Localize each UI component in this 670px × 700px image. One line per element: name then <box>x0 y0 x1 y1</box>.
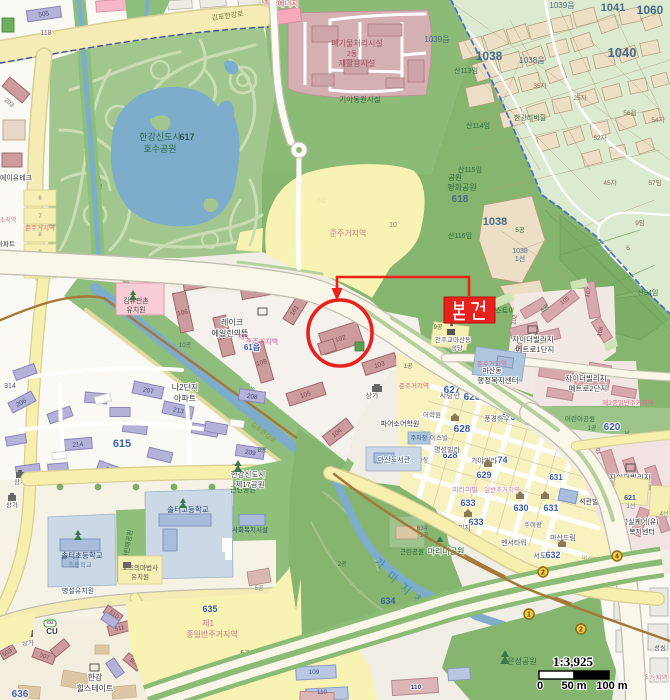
svg-text:636: 636 <box>12 689 29 700</box>
svg-text:상가: 상가 <box>366 391 379 400</box>
svg-text:성당: 성당 <box>451 343 463 352</box>
svg-text:314: 314 <box>4 383 16 390</box>
svg-text:병설유치원: 병설유치원 <box>62 586 94 595</box>
svg-text:마산동: 마산동 <box>482 366 502 375</box>
svg-text:성실케어(유): 성실케어(유) <box>622 517 659 526</box>
svg-text:1: 1 <box>527 612 531 619</box>
svg-text:1040: 1040 <box>608 45 637 60</box>
svg-text:634: 634 <box>380 596 395 606</box>
svg-text:준주거지역: 준주거지역 <box>477 359 507 368</box>
svg-text:멘서타워: 멘서타워 <box>501 538 527 547</box>
svg-text:산114임: 산114임 <box>466 121 490 130</box>
svg-text:61읍: 61읍 <box>244 342 261 352</box>
svg-text:한강: 한강 <box>88 672 103 682</box>
svg-text:9공: 9공 <box>434 324 443 331</box>
svg-text:10공: 10공 <box>179 342 192 349</box>
svg-text:유치원: 유치원 <box>126 305 145 314</box>
svg-text:은성공원: 은성공원 <box>507 657 536 666</box>
svg-text:천주교마산동: 천주교마산동 <box>435 335 471 344</box>
svg-text:산116임: 산116임 <box>448 231 472 240</box>
svg-text:2공: 2공 <box>338 561 347 568</box>
svg-text:아파트: 아파트 <box>0 239 15 248</box>
svg-text:미리미빌: 미리미빌 <box>452 485 478 494</box>
svg-text:주차장: 주차장 <box>411 434 428 442</box>
svg-text:1선: 1선 <box>627 502 636 510</box>
svg-text:632: 632 <box>545 550 560 560</box>
svg-text:615: 615 <box>113 438 131 450</box>
svg-text:준주거지역: 준주거지역 <box>330 228 367 238</box>
svg-text:633: 633 <box>460 498 475 508</box>
svg-text:힐스테이트: 힐스테이트 <box>77 683 114 693</box>
svg-text:에이유테크: 에이유테크 <box>0 173 33 182</box>
svg-text:10: 10 <box>389 222 397 229</box>
svg-text:630: 630 <box>513 503 528 513</box>
svg-text:1공: 1공 <box>404 363 413 370</box>
svg-text:2: 2 <box>541 570 545 577</box>
svg-text:근린공원: 근린공원 <box>400 547 424 556</box>
svg-text:소지역: 소지역 <box>0 216 16 224</box>
svg-text:629: 629 <box>476 470 491 480</box>
svg-text:2: 2 <box>579 627 583 634</box>
svg-text:52자: 52자 <box>593 133 606 142</box>
svg-text:레이크: 레이크 <box>221 317 243 327</box>
svg-text:파어소어학원: 파어소어학원 <box>381 419 420 428</box>
svg-text:214: 214 <box>72 441 84 449</box>
svg-text:617: 617 <box>179 132 194 142</box>
svg-text:1039읍: 1039읍 <box>424 35 449 44</box>
svg-text:풍경하우: 풍경하우 <box>484 414 510 423</box>
svg-text:54자: 54자 <box>651 115 664 124</box>
svg-text:마산도서관: 마산도서관 <box>378 455 411 464</box>
svg-text:어린이공원: 어린이공원 <box>565 414 595 423</box>
svg-text:공원: 공원 <box>448 173 462 182</box>
svg-text:준주거지역: 준주거지역 <box>399 381 429 390</box>
svg-text:109: 109 <box>309 669 320 676</box>
svg-text:635: 635 <box>202 604 217 614</box>
svg-text:종일반주거지역: 종일반주거지역 <box>186 629 238 639</box>
svg-text:1038: 1038 <box>476 49 503 63</box>
svg-text:2동: 2동 <box>347 50 358 58</box>
svg-text:25자: 25자 <box>573 93 586 102</box>
svg-text:628: 628 <box>454 424 471 435</box>
svg-text:1038: 1038 <box>512 248 528 255</box>
svg-text:35자: 35자 <box>533 81 546 90</box>
svg-text:5공: 5공 <box>317 196 327 204</box>
svg-text:100 m: 100 m <box>596 680 627 692</box>
svg-text:631: 631 <box>543 503 558 513</box>
svg-text:유치원: 유치원 <box>131 572 149 581</box>
svg-text:631: 631 <box>549 473 563 482</box>
svg-text:초등학교: 초등학교 <box>68 560 92 569</box>
svg-text:복지센터: 복지센터 <box>629 527 655 536</box>
svg-text:1060: 1060 <box>637 3 664 17</box>
svg-text:준주거지역: 준주거지역 <box>25 223 55 232</box>
svg-text:5공: 5공 <box>255 585 264 592</box>
svg-text:어학원: 어학원 <box>423 410 441 419</box>
svg-text:118: 118 <box>40 30 51 37</box>
svg-text:아파트: 아파트 <box>174 393 196 403</box>
svg-text:1선: 1선 <box>515 254 525 263</box>
svg-text:9임: 9임 <box>635 219 645 227</box>
svg-text:1공: 1공 <box>588 425 597 432</box>
svg-text:45자: 45자 <box>603 178 616 187</box>
svg-text:성심: 성심 <box>654 643 666 652</box>
svg-text:상가: 상가 <box>6 500 18 509</box>
svg-text:56읍: 56읍 <box>623 109 636 117</box>
svg-text:618: 618 <box>452 194 469 205</box>
svg-text:57임: 57임 <box>648 179 661 187</box>
svg-text:CU: CU <box>46 627 58 636</box>
svg-text:1041: 1041 <box>601 2 625 14</box>
svg-text:110: 110 <box>317 689 328 696</box>
svg-text:명성빌라: 명성빌라 <box>434 445 460 454</box>
svg-text:한강리버힐: 한강리버힐 <box>514 113 546 122</box>
svg-text:솔터고등학교: 솔터고등학교 <box>167 504 208 514</box>
svg-text:재활용시설: 재활용시설 <box>339 58 376 68</box>
svg-text:김류판촌: 김류판촌 <box>123 296 149 305</box>
svg-text:호수공원: 호수공원 <box>143 144 176 154</box>
svg-text:1038읍: 1038읍 <box>519 56 544 65</box>
svg-text:한강신도시: 한강신도시 <box>139 132 180 142</box>
svg-text:621: 621 <box>624 495 636 502</box>
svg-text:620: 620 <box>604 422 621 433</box>
svg-text:기아동원사설: 기아동원사설 <box>339 94 380 104</box>
svg-text:제2종일반주거지역: 제2종일반주거지역 <box>602 398 653 407</box>
svg-text:4선: 4선 <box>660 510 669 518</box>
svg-text:폐기물처리시설: 폐기물처리시설 <box>331 38 383 48</box>
svg-text:8공: 8공 <box>258 447 267 454</box>
svg-text:1038: 1038 <box>483 216 507 228</box>
svg-text:사회복지시설: 사회복지시설 <box>232 525 268 534</box>
svg-text:일반주거지역: 일반주거지역 <box>484 485 520 494</box>
svg-text:CU: CU <box>47 620 54 625</box>
svg-text:메트로2단지: 메트로2단지 <box>569 383 608 393</box>
svg-text:행정복지센터: 행정복지센터 <box>477 375 518 385</box>
svg-text:솔터초등학교: 솔터초등학교 <box>61 550 102 560</box>
svg-text:0: 0 <box>537 680 543 692</box>
svg-text:1039읍: 1039읍 <box>549 1 574 10</box>
svg-text:나2단지: 나2단지 <box>172 382 199 392</box>
svg-text:4: 4 <box>615 554 619 561</box>
svg-text:산113임: 산113임 <box>454 66 478 75</box>
svg-text:평화공원: 평화공원 <box>447 182 476 192</box>
svg-text:제1: 제1 <box>202 619 214 628</box>
svg-text:5공: 5공 <box>515 226 525 234</box>
svg-text:주여랑: 주여랑 <box>524 520 542 529</box>
svg-text:1:3,925: 1:3,925 <box>553 654 594 669</box>
svg-text:110: 110 <box>411 684 422 691</box>
svg-text:6: 6 <box>626 245 630 252</box>
svg-text:제17공원: 제17공원 <box>235 480 264 489</box>
svg-text:50 m: 50 m <box>561 680 586 692</box>
